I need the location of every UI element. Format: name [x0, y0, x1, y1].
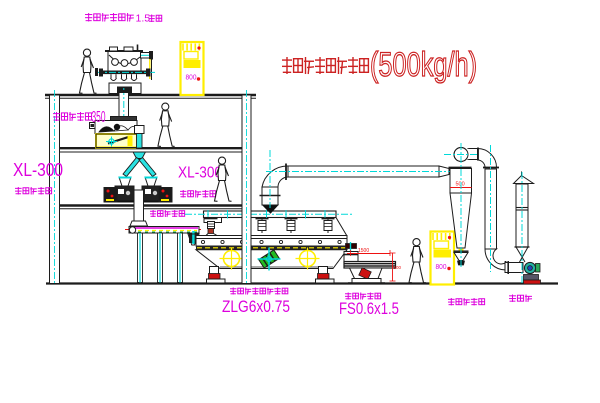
svg-text:XL-300: XL-300 — [13, 160, 63, 180]
svg-text:800: 800 — [186, 73, 197, 82]
svg-text:(500kg/h): (500kg/h) — [370, 46, 477, 84]
svg-text:350: 350 — [92, 109, 106, 126]
svg-text:1500: 1500 — [358, 248, 369, 254]
svg-text:1.5: 1.5 — [136, 13, 151, 25]
svg-text:500: 500 — [394, 265, 402, 270]
svg-text:FS0.6x1.5: FS0.6x1.5 — [339, 299, 399, 318]
svg-text:XL-300: XL-300 — [178, 165, 222, 182]
svg-text:800: 800 — [436, 262, 447, 271]
svg-text:ZLG6x0.75: ZLG6x0.75 — [222, 297, 290, 316]
svg-text:500: 500 — [456, 182, 465, 188]
